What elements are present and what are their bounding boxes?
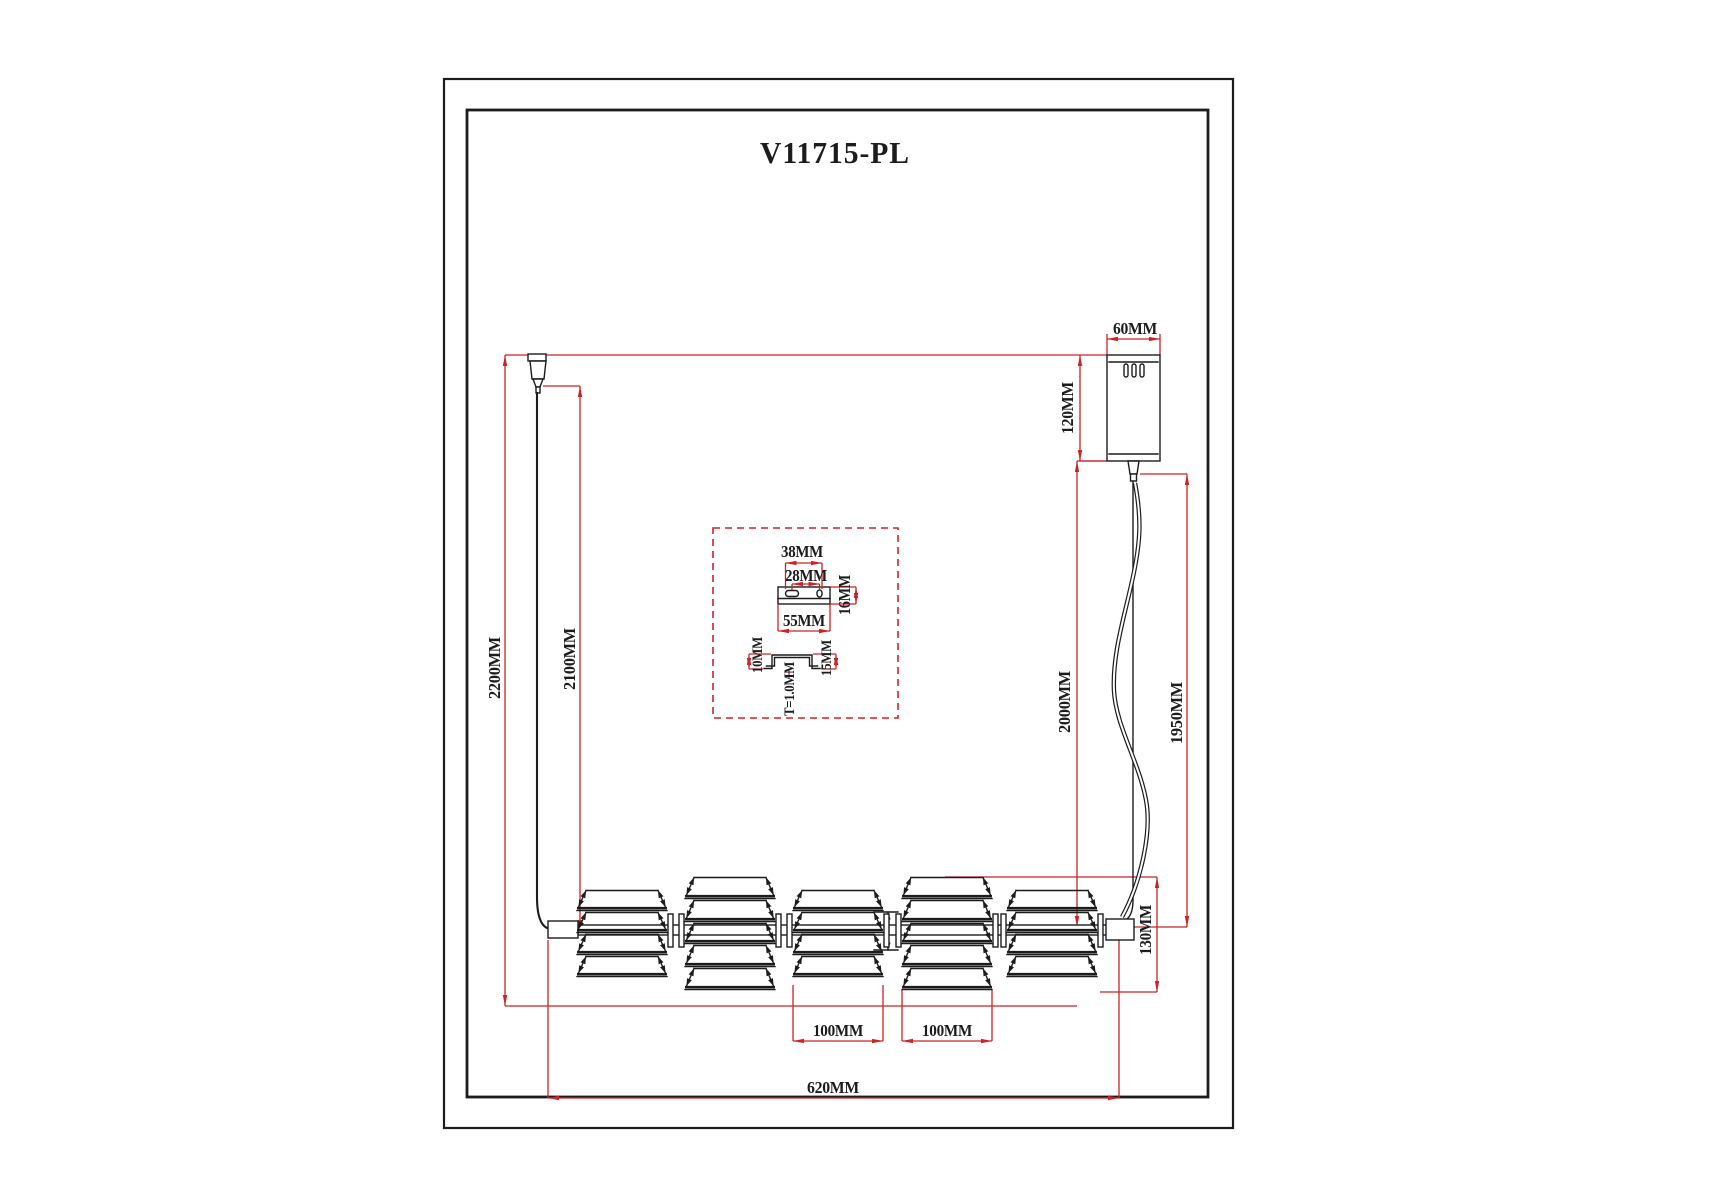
dim-hole-span-label: 38MM — [781, 542, 824, 561]
ceiling-grip-body — [530, 361, 546, 379]
connector-plate — [896, 914, 901, 947]
dim-channel-height-label: 10MM — [750, 637, 766, 673]
dim-shade-height-label: 130MM — [1136, 904, 1155, 955]
dim-shade4-width: 100MM — [902, 990, 992, 1041]
connector-plate — [668, 914, 673, 947]
dimension-lines: 2200MM 2100MM 2000MM 1950MM 60MM — [485, 319, 1187, 1098]
right-drop — [1114, 481, 1148, 919]
bar-left-fitting — [548, 921, 578, 938]
technical-drawing: V11715-PL 2200MM 2100MM 2000MM 1 — [0, 0, 1715, 1200]
light-bar — [548, 878, 1134, 990]
connector-plate — [679, 914, 684, 947]
mounting-plate-detail: 38MM 28MM 16MM 55MM — [778, 542, 856, 631]
dim-plate-length-label: 55MM — [783, 611, 826, 630]
dim-shade4-width-label: 100MM — [922, 1021, 973, 1040]
dim-wall-thickness-label: T=1.0MM — [782, 662, 798, 716]
driver-neck — [1128, 461, 1139, 474]
power-cord — [1114, 483, 1148, 917]
connector-plate — [776, 914, 781, 947]
dim-right-cord-label: 2000MM — [1055, 670, 1074, 733]
connector-plate — [1098, 914, 1103, 947]
dim-canopy-width-label: 60MM — [1113, 319, 1158, 338]
detail-inset: 38MM 28MM 16MM 55MM 10MM 15MM T=1.0MM — [713, 528, 898, 718]
driver-box — [1107, 355, 1160, 481]
connector-plate — [787, 914, 792, 947]
connector-plate — [993, 914, 998, 947]
suspension-wire-left — [537, 393, 552, 929]
dim-right-wire: 1950MM — [1140, 474, 1187, 927]
bar-right-cap — [1106, 919, 1134, 940]
connector-plate — [1001, 914, 1006, 947]
dim-bar-length: 620MM — [548, 940, 1119, 1098]
dim-canopy-height-label: 120MM — [1058, 381, 1077, 434]
connector-plate — [884, 914, 889, 947]
dim-hole-spacing-label: 28MM — [785, 566, 828, 585]
left-suspension — [528, 354, 552, 929]
drawing-title: V11715-PL — [760, 135, 910, 170]
dim-bar-length-label: 620MM — [807, 1078, 860, 1097]
dim-shade3-width-label: 100MM — [813, 1021, 864, 1040]
dim-shade3-width: 100MM — [793, 985, 883, 1041]
dim-right-wire-label: 1950MM — [1167, 681, 1186, 744]
dim-left-wire-label: 2100MM — [560, 627, 579, 690]
drawing-page: V11715-PL 2200MM 2100MM 2000MM 1 — [0, 0, 1715, 1200]
dim-left-overall: 2200MM — [485, 355, 505, 1006]
dim-left-overall-label: 2200MM — [485, 636, 504, 699]
dim-left-wire: 2100MM — [553, 386, 580, 931]
dim-canopy-width: 60MM — [1107, 319, 1160, 355]
ceiling-grip-cap — [528, 354, 546, 361]
suspension-wire-right — [1127, 481, 1133, 919]
dim-channel-width-label: 15MM — [819, 640, 835, 676]
dim-canopy-height: 120MM — [1058, 355, 1107, 461]
channel-profile-detail: 10MM 15MM T=1.0MM — [749, 637, 836, 716]
dim-plate-depth-label: 16MM — [835, 574, 854, 615]
